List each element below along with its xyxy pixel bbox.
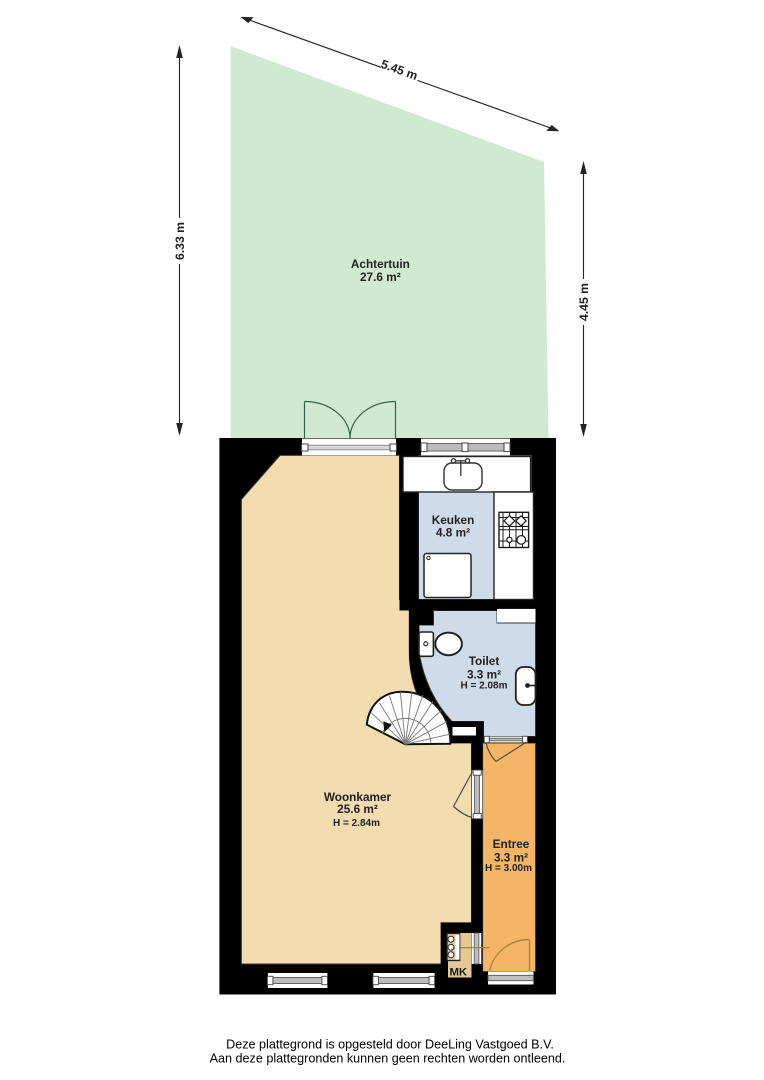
svg-text:H = 3.00m: H = 3.00m <box>485 863 532 874</box>
svg-text:27.6 m²: 27.6 m² <box>360 270 401 284</box>
svg-text:Toilet: Toilet <box>469 654 500 668</box>
svg-text:Entree: Entree <box>493 837 530 851</box>
svg-text:6.33 m: 6.33 m <box>173 222 187 260</box>
svg-text:Aan deze plattegronden kunnen: Aan deze plattegronden kunnen geen recht… <box>210 1052 566 1066</box>
svg-text:4.8 m²: 4.8 m² <box>436 526 470 540</box>
svg-text:4.45 m: 4.45 m <box>577 283 591 321</box>
svg-text:Deze plattegrond is opgesteld: Deze plattegrond is opgesteld door DeeLi… <box>226 1038 554 1052</box>
svg-text:H = 2.08m: H = 2.08m <box>461 681 508 692</box>
svg-text:H = 2.84m: H = 2.84m <box>333 818 380 829</box>
svg-text:25.6 m²: 25.6 m² <box>337 802 378 816</box>
svg-text:3.3 m²: 3.3 m² <box>467 668 501 682</box>
svg-text:MK: MK <box>449 967 467 979</box>
